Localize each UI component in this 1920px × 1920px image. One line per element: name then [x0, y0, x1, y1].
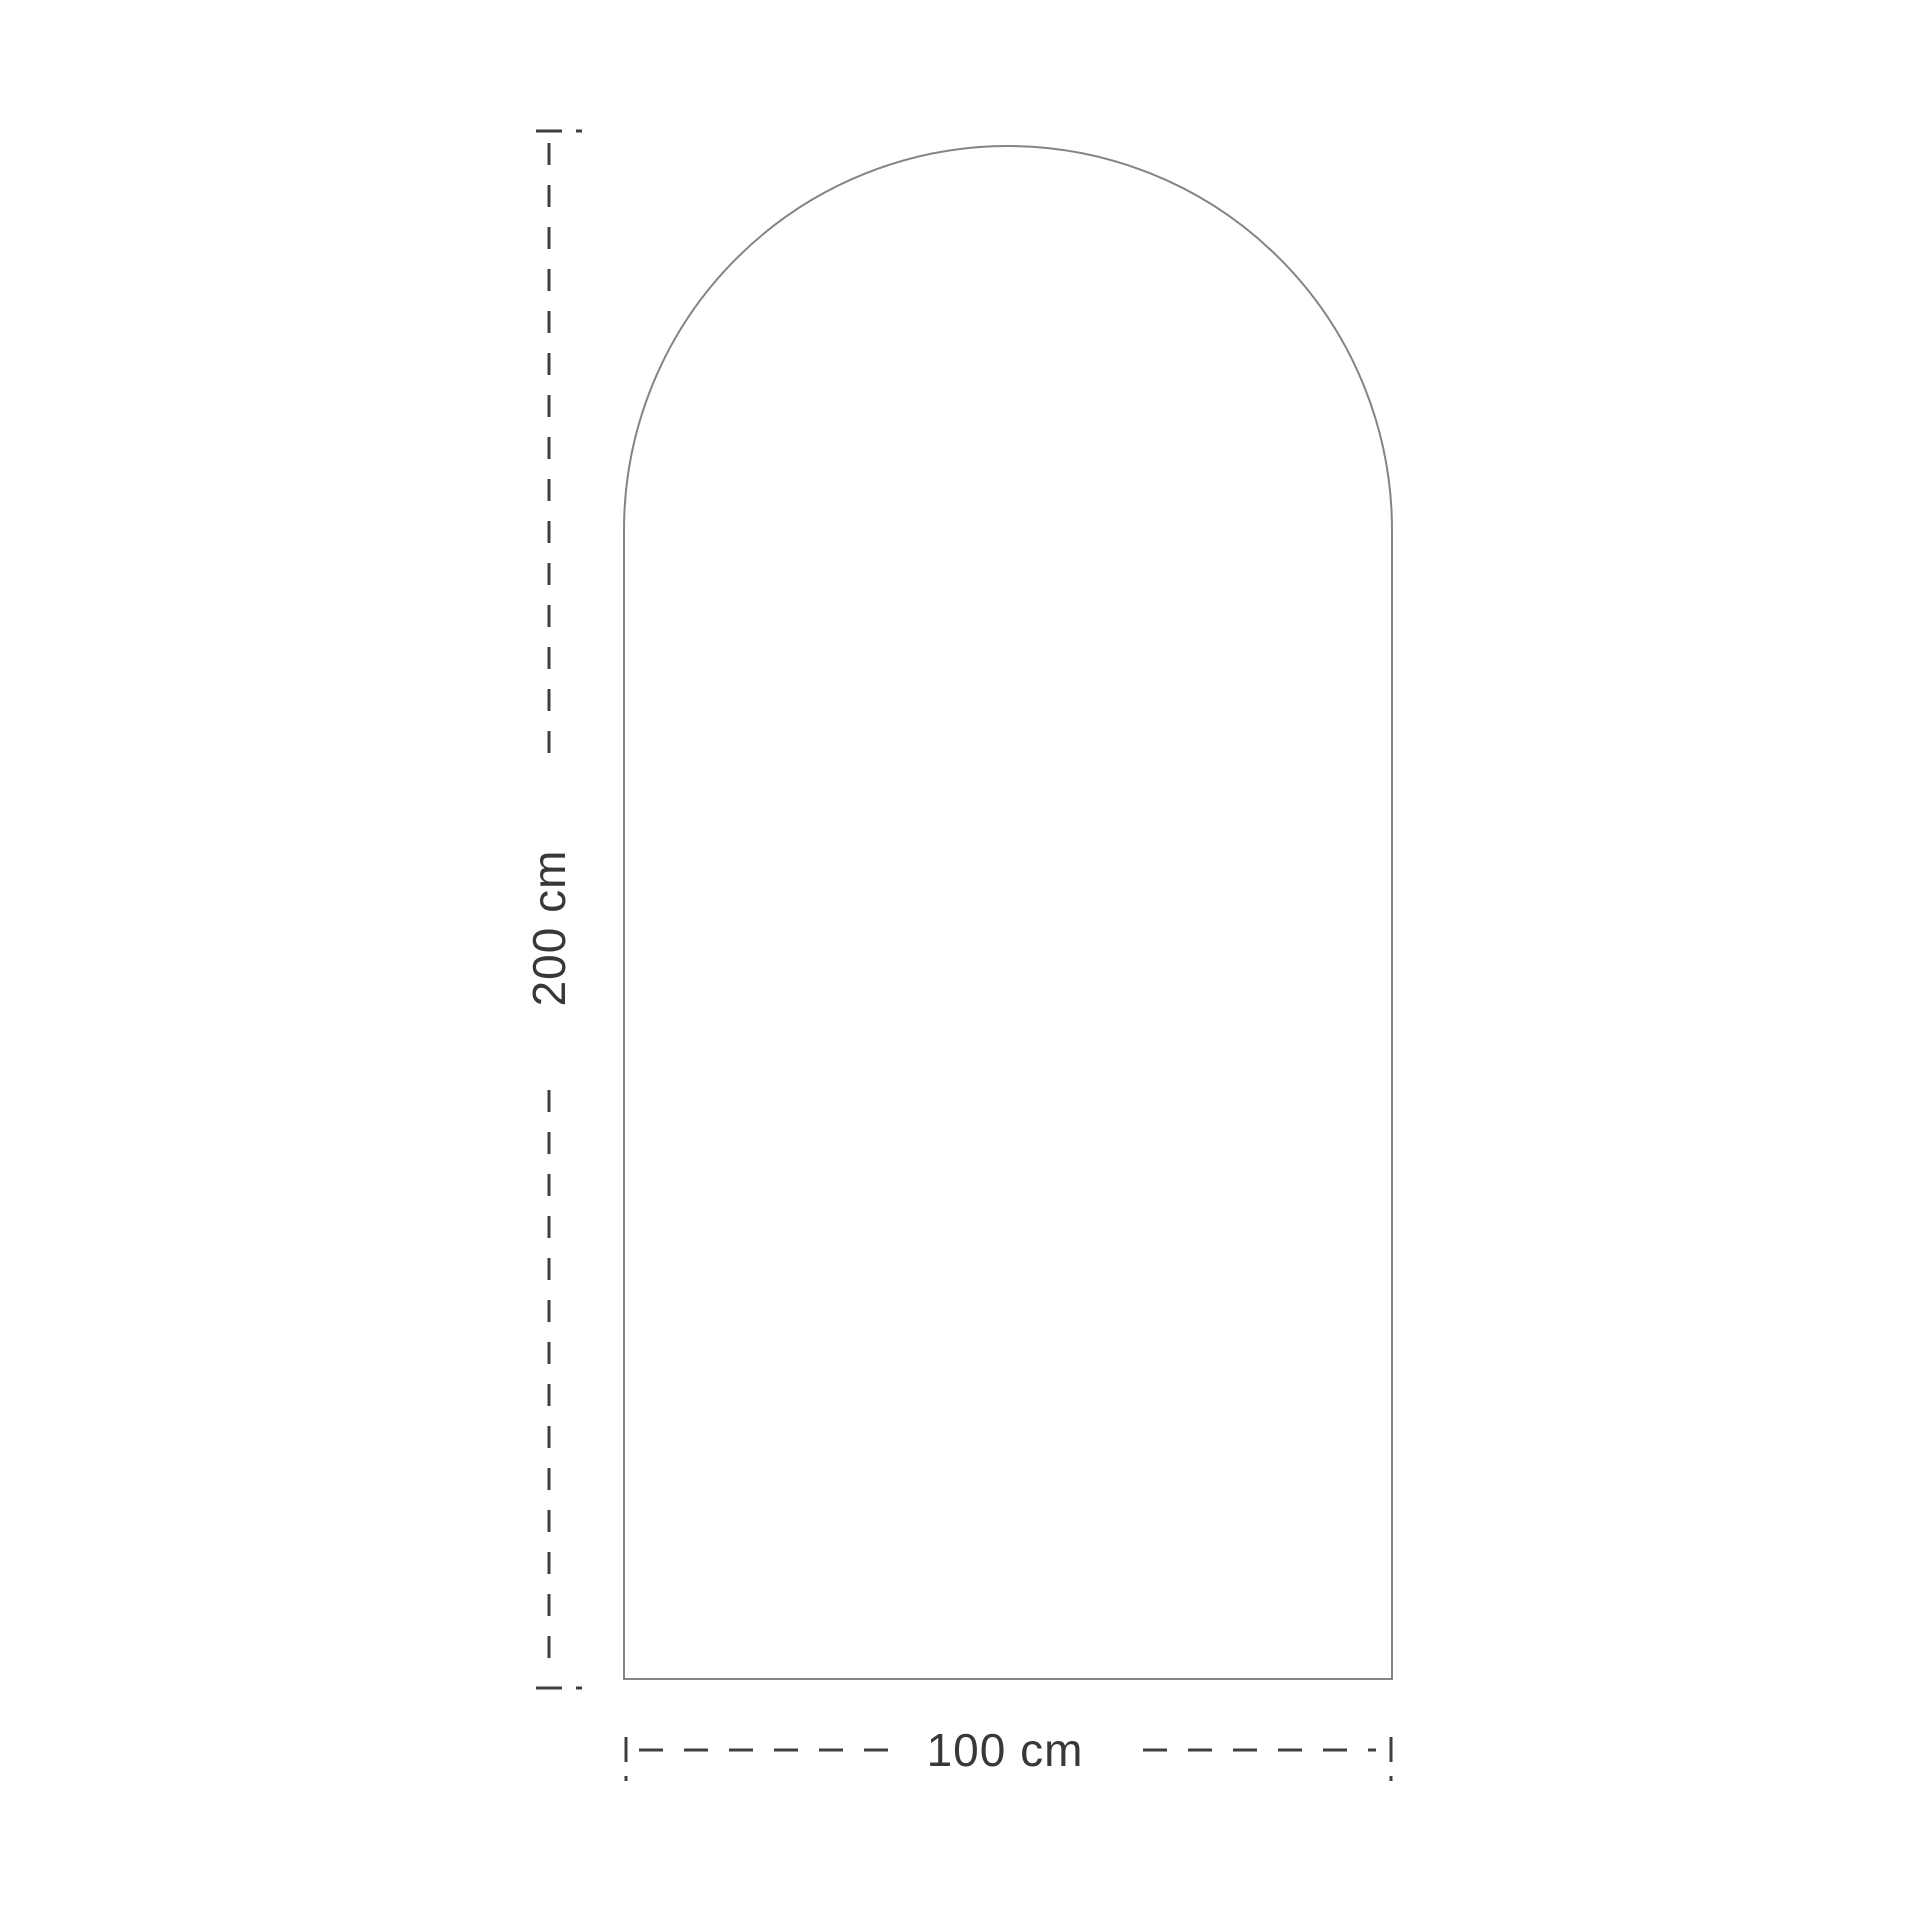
arch-outline [624, 146, 1392, 1679]
width-dimension-label: 100 cm [921, 1727, 1090, 1773]
diagram-canvas [0, 0, 1920, 1920]
diagram-page: 200 cm 100 cm [0, 0, 1920, 1920]
height-dimension-label: 200 cm [526, 844, 572, 1013]
